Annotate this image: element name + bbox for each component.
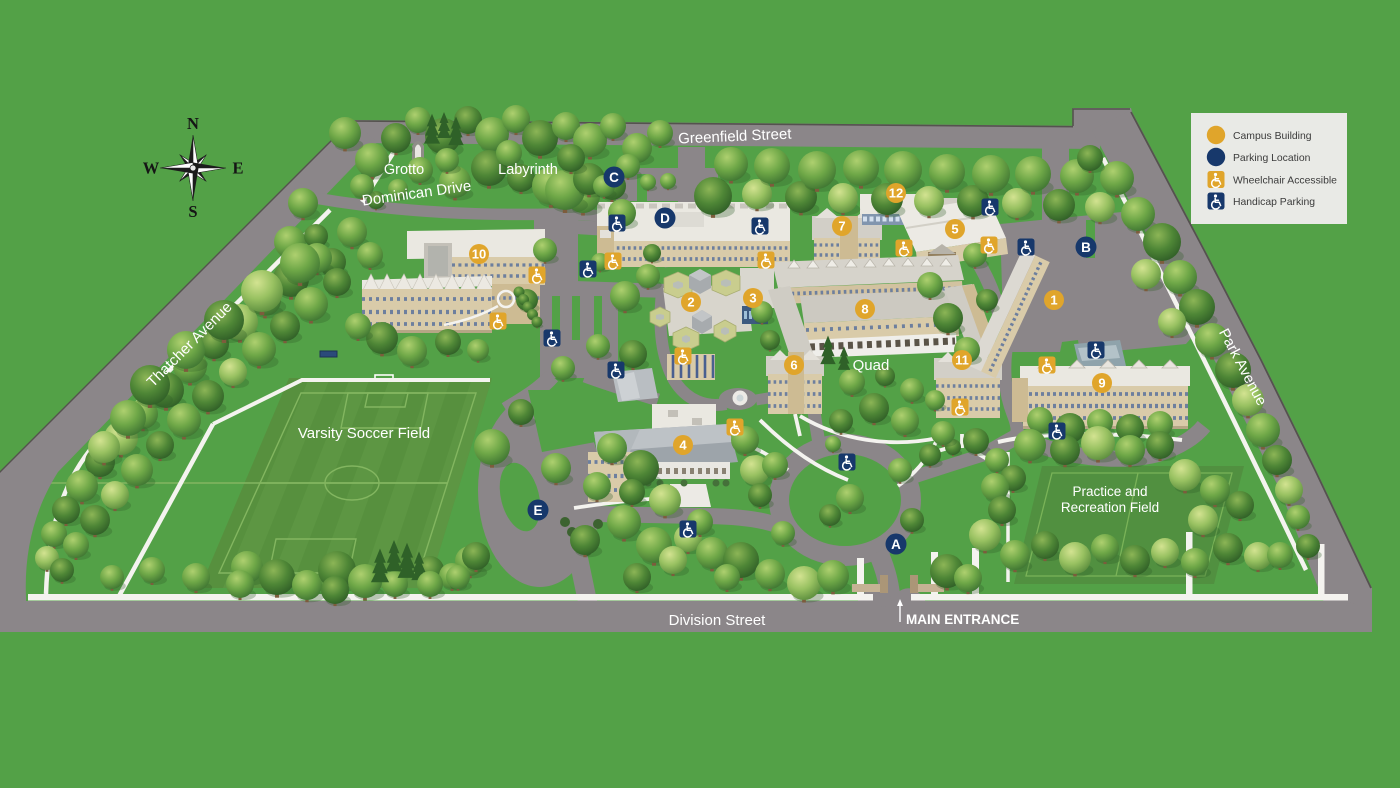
- svg-text:12: 12: [889, 186, 903, 201]
- svg-text:8: 8: [861, 302, 868, 317]
- svg-text:6: 6: [790, 358, 797, 373]
- svg-text:N: N: [187, 114, 199, 133]
- svg-text:Recreation Field: Recreation Field: [1061, 500, 1159, 515]
- svg-text:Division Street: Division Street: [669, 612, 767, 629]
- svg-text:E: E: [533, 503, 542, 518]
- svg-text:A: A: [891, 537, 901, 552]
- svg-text:Wheelchair Accessible: Wheelchair Accessible: [1233, 175, 1337, 186]
- svg-text:Handicap Parking: Handicap Parking: [1233, 197, 1315, 208]
- svg-text:B: B: [1081, 240, 1091, 255]
- svg-text:Campus Building: Campus Building: [1233, 131, 1312, 142]
- svg-text:E: E: [232, 159, 243, 178]
- svg-text:7: 7: [838, 219, 845, 234]
- svg-text:Quad: Quad: [853, 357, 890, 374]
- svg-text:10: 10: [472, 247, 486, 262]
- svg-text:D: D: [660, 211, 670, 226]
- svg-text:9: 9: [1098, 376, 1105, 391]
- svg-text:5: 5: [951, 222, 958, 237]
- svg-text:Parking Location: Parking Location: [1233, 153, 1311, 164]
- svg-text:3: 3: [749, 291, 756, 306]
- svg-text:W: W: [143, 159, 160, 178]
- svg-text:S: S: [188, 202, 197, 221]
- svg-text:Grotto: Grotto: [384, 162, 424, 178]
- svg-text:2: 2: [687, 295, 694, 310]
- svg-text:Labyrinth: Labyrinth: [498, 162, 558, 178]
- svg-text:4: 4: [679, 438, 687, 453]
- svg-text:Varsity Soccer Field: Varsity Soccer Field: [298, 425, 430, 442]
- svg-text:1: 1: [1050, 293, 1057, 308]
- svg-text:MAIN ENTRANCE: MAIN ENTRANCE: [906, 612, 1019, 627]
- svg-text:11: 11: [955, 353, 969, 368]
- svg-text:Practice and: Practice and: [1072, 484, 1147, 499]
- svg-text:C: C: [609, 170, 619, 185]
